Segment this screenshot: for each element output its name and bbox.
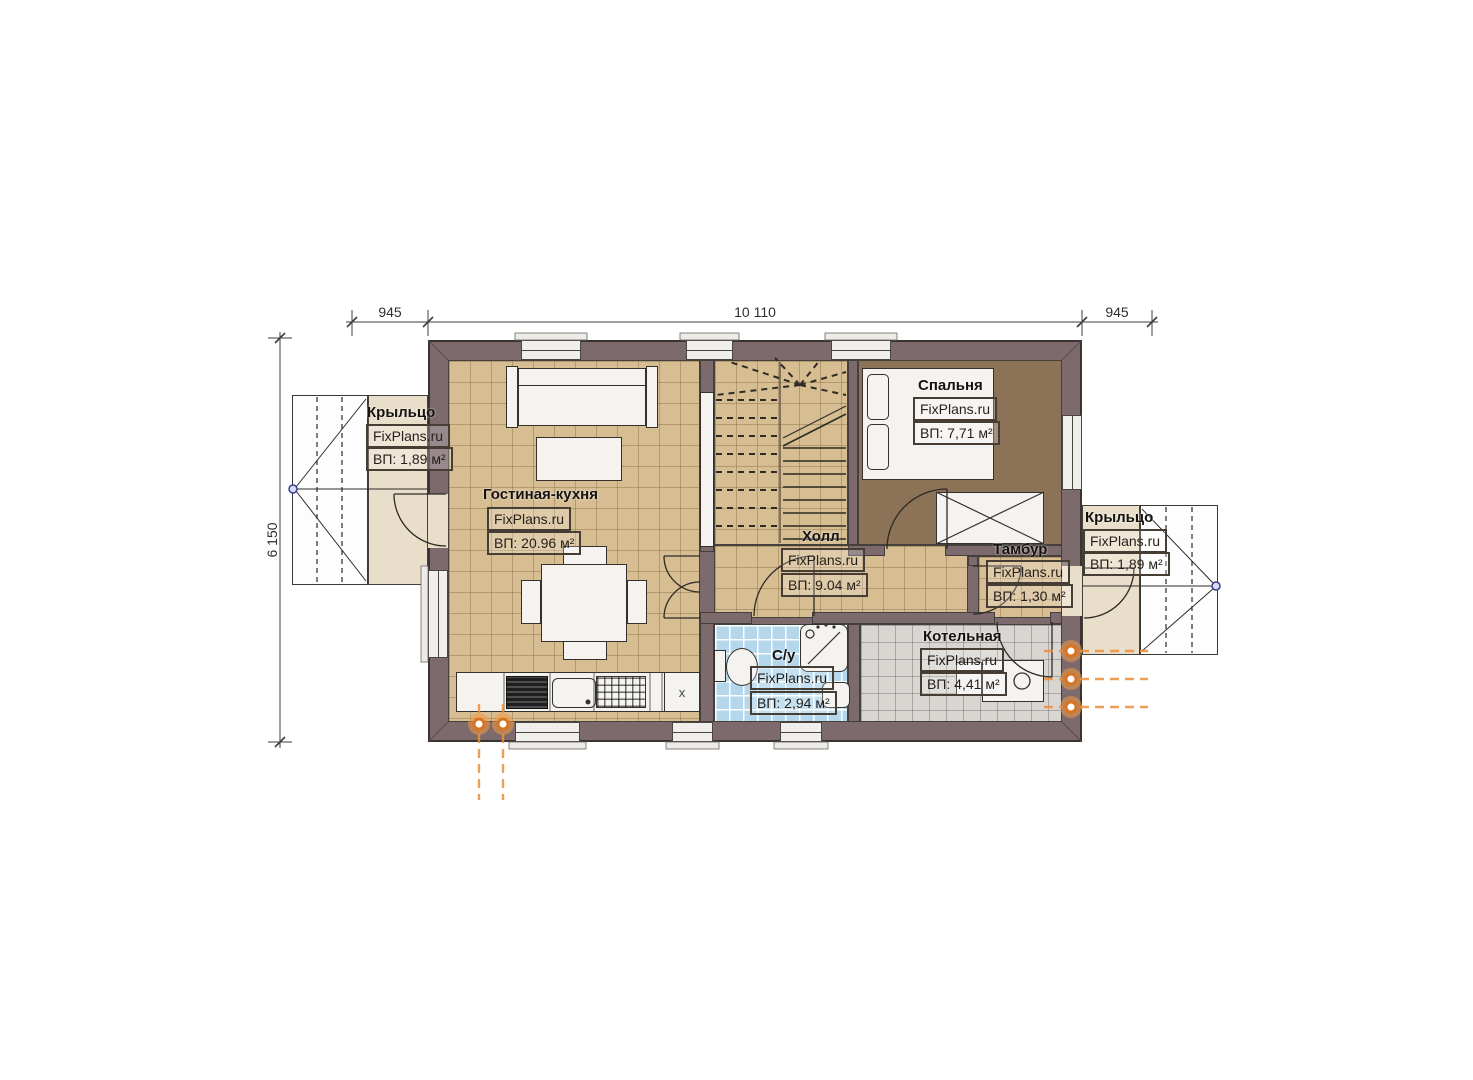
label-vestibule-watermark: FixPlans.ru bbox=[986, 560, 1070, 584]
label-vestibule-area: ВП: 1,30 м² bbox=[986, 584, 1073, 608]
kitchen-sink bbox=[552, 678, 596, 708]
wall-bath-boiler bbox=[848, 624, 860, 722]
dim-left: 6 150 bbox=[264, 522, 280, 557]
pillow-1 bbox=[867, 374, 889, 420]
window-top-1 bbox=[521, 340, 581, 360]
label-living-area: ВП: 20.96 м² bbox=[487, 531, 581, 555]
window-top-2 bbox=[686, 340, 733, 360]
fridge bbox=[506, 676, 548, 709]
dim-top-left: 945 bbox=[378, 304, 401, 320]
window-right bbox=[1062, 415, 1082, 490]
sofa-armrest-left bbox=[506, 366, 518, 428]
window-bottom-1 bbox=[515, 722, 580, 742]
pillow-2 bbox=[867, 424, 889, 470]
stairwell-floor bbox=[714, 360, 848, 545]
stove bbox=[596, 676, 646, 708]
label-vestibule-name: Тамбур bbox=[993, 541, 1047, 558]
floor-plan-canvas: x bbox=[0, 0, 1473, 1080]
label-porch-left-area: ВП: 1,89 м² bbox=[366, 447, 453, 471]
label-porch-right-watermark: FixPlans.ru bbox=[1083, 529, 1167, 553]
label-porch-right-area: ВП: 1,89 м² bbox=[1083, 552, 1170, 576]
dim-top-center: 10 110 bbox=[734, 304, 776, 320]
wall-living-bath bbox=[700, 622, 714, 722]
dining-table bbox=[541, 564, 627, 642]
wall-hall-bath-left bbox=[700, 612, 752, 624]
label-hall-watermark: FixPlans.ru bbox=[781, 548, 865, 572]
dim-top-right: 945 bbox=[1105, 304, 1128, 320]
porch-left-steps bbox=[292, 395, 368, 585]
label-hall-area: ВП: 9.04 м² bbox=[781, 573, 868, 597]
label-boiler-name: Котельная bbox=[923, 628, 1002, 645]
label-bedroom-watermark: FixPlans.ru bbox=[913, 397, 997, 421]
dining-chair-bottom bbox=[563, 640, 607, 660]
sofa bbox=[518, 368, 646, 426]
window-bottom-3 bbox=[780, 722, 822, 742]
label-porch-right-name: Крыльцо bbox=[1085, 509, 1153, 526]
label-hall-name: Холл bbox=[802, 528, 840, 545]
shower bbox=[800, 624, 848, 672]
label-porch-left-name: Крыльцо bbox=[367, 404, 435, 421]
window-top-3 bbox=[831, 340, 891, 360]
label-bathroom-name: С/у bbox=[772, 647, 795, 664]
wall-hall-vestibule bbox=[968, 556, 978, 566]
label-bedroom-area: ВП: 7,71 м² bbox=[913, 421, 1000, 445]
label-boiler-watermark: FixPlans.ru bbox=[920, 648, 1004, 672]
label-living-watermark: FixPlans.ru bbox=[487, 507, 571, 531]
porch-right-steps bbox=[1140, 505, 1218, 655]
label-bathroom-watermark: FixPlans.ru bbox=[750, 666, 834, 690]
window-bottom-2 bbox=[672, 722, 713, 742]
wall-stairs-bedroom bbox=[848, 360, 858, 545]
wardrobe bbox=[936, 492, 1044, 544]
sofa-armrest-right bbox=[646, 366, 658, 428]
label-living-name: Гостиная-кухня bbox=[483, 486, 598, 503]
dining-chair-left bbox=[521, 580, 541, 624]
dining-chair-right bbox=[627, 580, 647, 624]
cabinet-x-label: x bbox=[679, 685, 686, 700]
label-bathroom-area: ВП: 2,94 м² bbox=[750, 691, 837, 715]
toilet-tank bbox=[714, 650, 726, 682]
label-bedroom-name: Спальня bbox=[918, 377, 983, 394]
wall-hall-boiler bbox=[812, 612, 995, 624]
coffee-table bbox=[536, 437, 622, 481]
front-door-opening bbox=[428, 494, 448, 548]
window-left bbox=[428, 570, 448, 658]
label-boiler-area: ВП: 4,41 м² bbox=[920, 672, 1007, 696]
label-porch-left-watermark: FixPlans.ru bbox=[366, 424, 450, 448]
porch-right-floor bbox=[1082, 505, 1140, 655]
stair-partition bbox=[700, 392, 714, 547]
wall-vestibule-boiler-stub bbox=[1050, 612, 1062, 624]
kitchen-cabinet-x: x bbox=[664, 672, 700, 712]
